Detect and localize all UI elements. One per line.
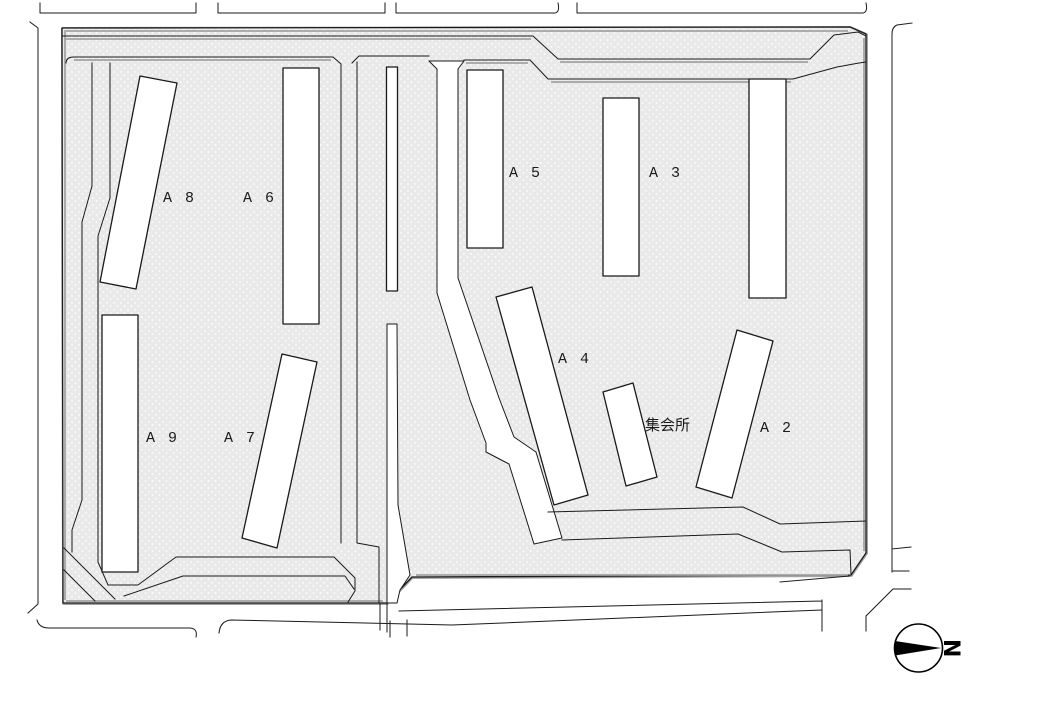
right-road-far-edge bbox=[892, 23, 912, 572]
label-a9: A 9 bbox=[146, 430, 179, 447]
bottom-bracket-2 bbox=[219, 610, 822, 637]
site-plan-page: A 8 A 6 A 5 A 3 A 4 集会所 A 2 A 9 A 7 N bbox=[0, 0, 1040, 720]
compass-north-letter: N bbox=[938, 639, 963, 657]
label-a2: A 2 bbox=[760, 420, 793, 437]
site-plan-canvas: A 8 A 6 A 5 A 3 A 4 集会所 A 2 A 9 A 7 N bbox=[0, 0, 1040, 720]
building-narrow bbox=[387, 67, 398, 291]
top-bracket-4 bbox=[577, 3, 867, 13]
building-unlabeled-right bbox=[749, 79, 786, 298]
label-a7: A 7 bbox=[224, 430, 257, 447]
top-bracket-1 bbox=[40, 3, 196, 13]
building-a3 bbox=[603, 98, 639, 276]
compass: N bbox=[895, 624, 964, 672]
top-bracket-3 bbox=[396, 3, 559, 13]
top-bracket-2 bbox=[218, 3, 385, 13]
building-a5 bbox=[467, 70, 503, 248]
top-road-brackets bbox=[40, 3, 867, 13]
label-a3: A 3 bbox=[649, 165, 682, 182]
label-meeting-hall: 集会所 bbox=[645, 417, 690, 435]
bottom-bracket-1 bbox=[37, 620, 196, 637]
building-a6 bbox=[283, 68, 319, 324]
footpath-mouth-ticks bbox=[380, 603, 387, 632]
building-a9 bbox=[102, 315, 138, 572]
label-a6: A 6 bbox=[243, 190, 276, 207]
bottom-right-intersection bbox=[866, 589, 911, 631]
label-a8: A 8 bbox=[163, 190, 196, 207]
bottom-road-far-edge bbox=[399, 600, 822, 631]
label-a4: A 4 bbox=[558, 351, 591, 368]
left-road-far-edge bbox=[28, 22, 38, 613]
label-a5: A 5 bbox=[509, 165, 542, 182]
